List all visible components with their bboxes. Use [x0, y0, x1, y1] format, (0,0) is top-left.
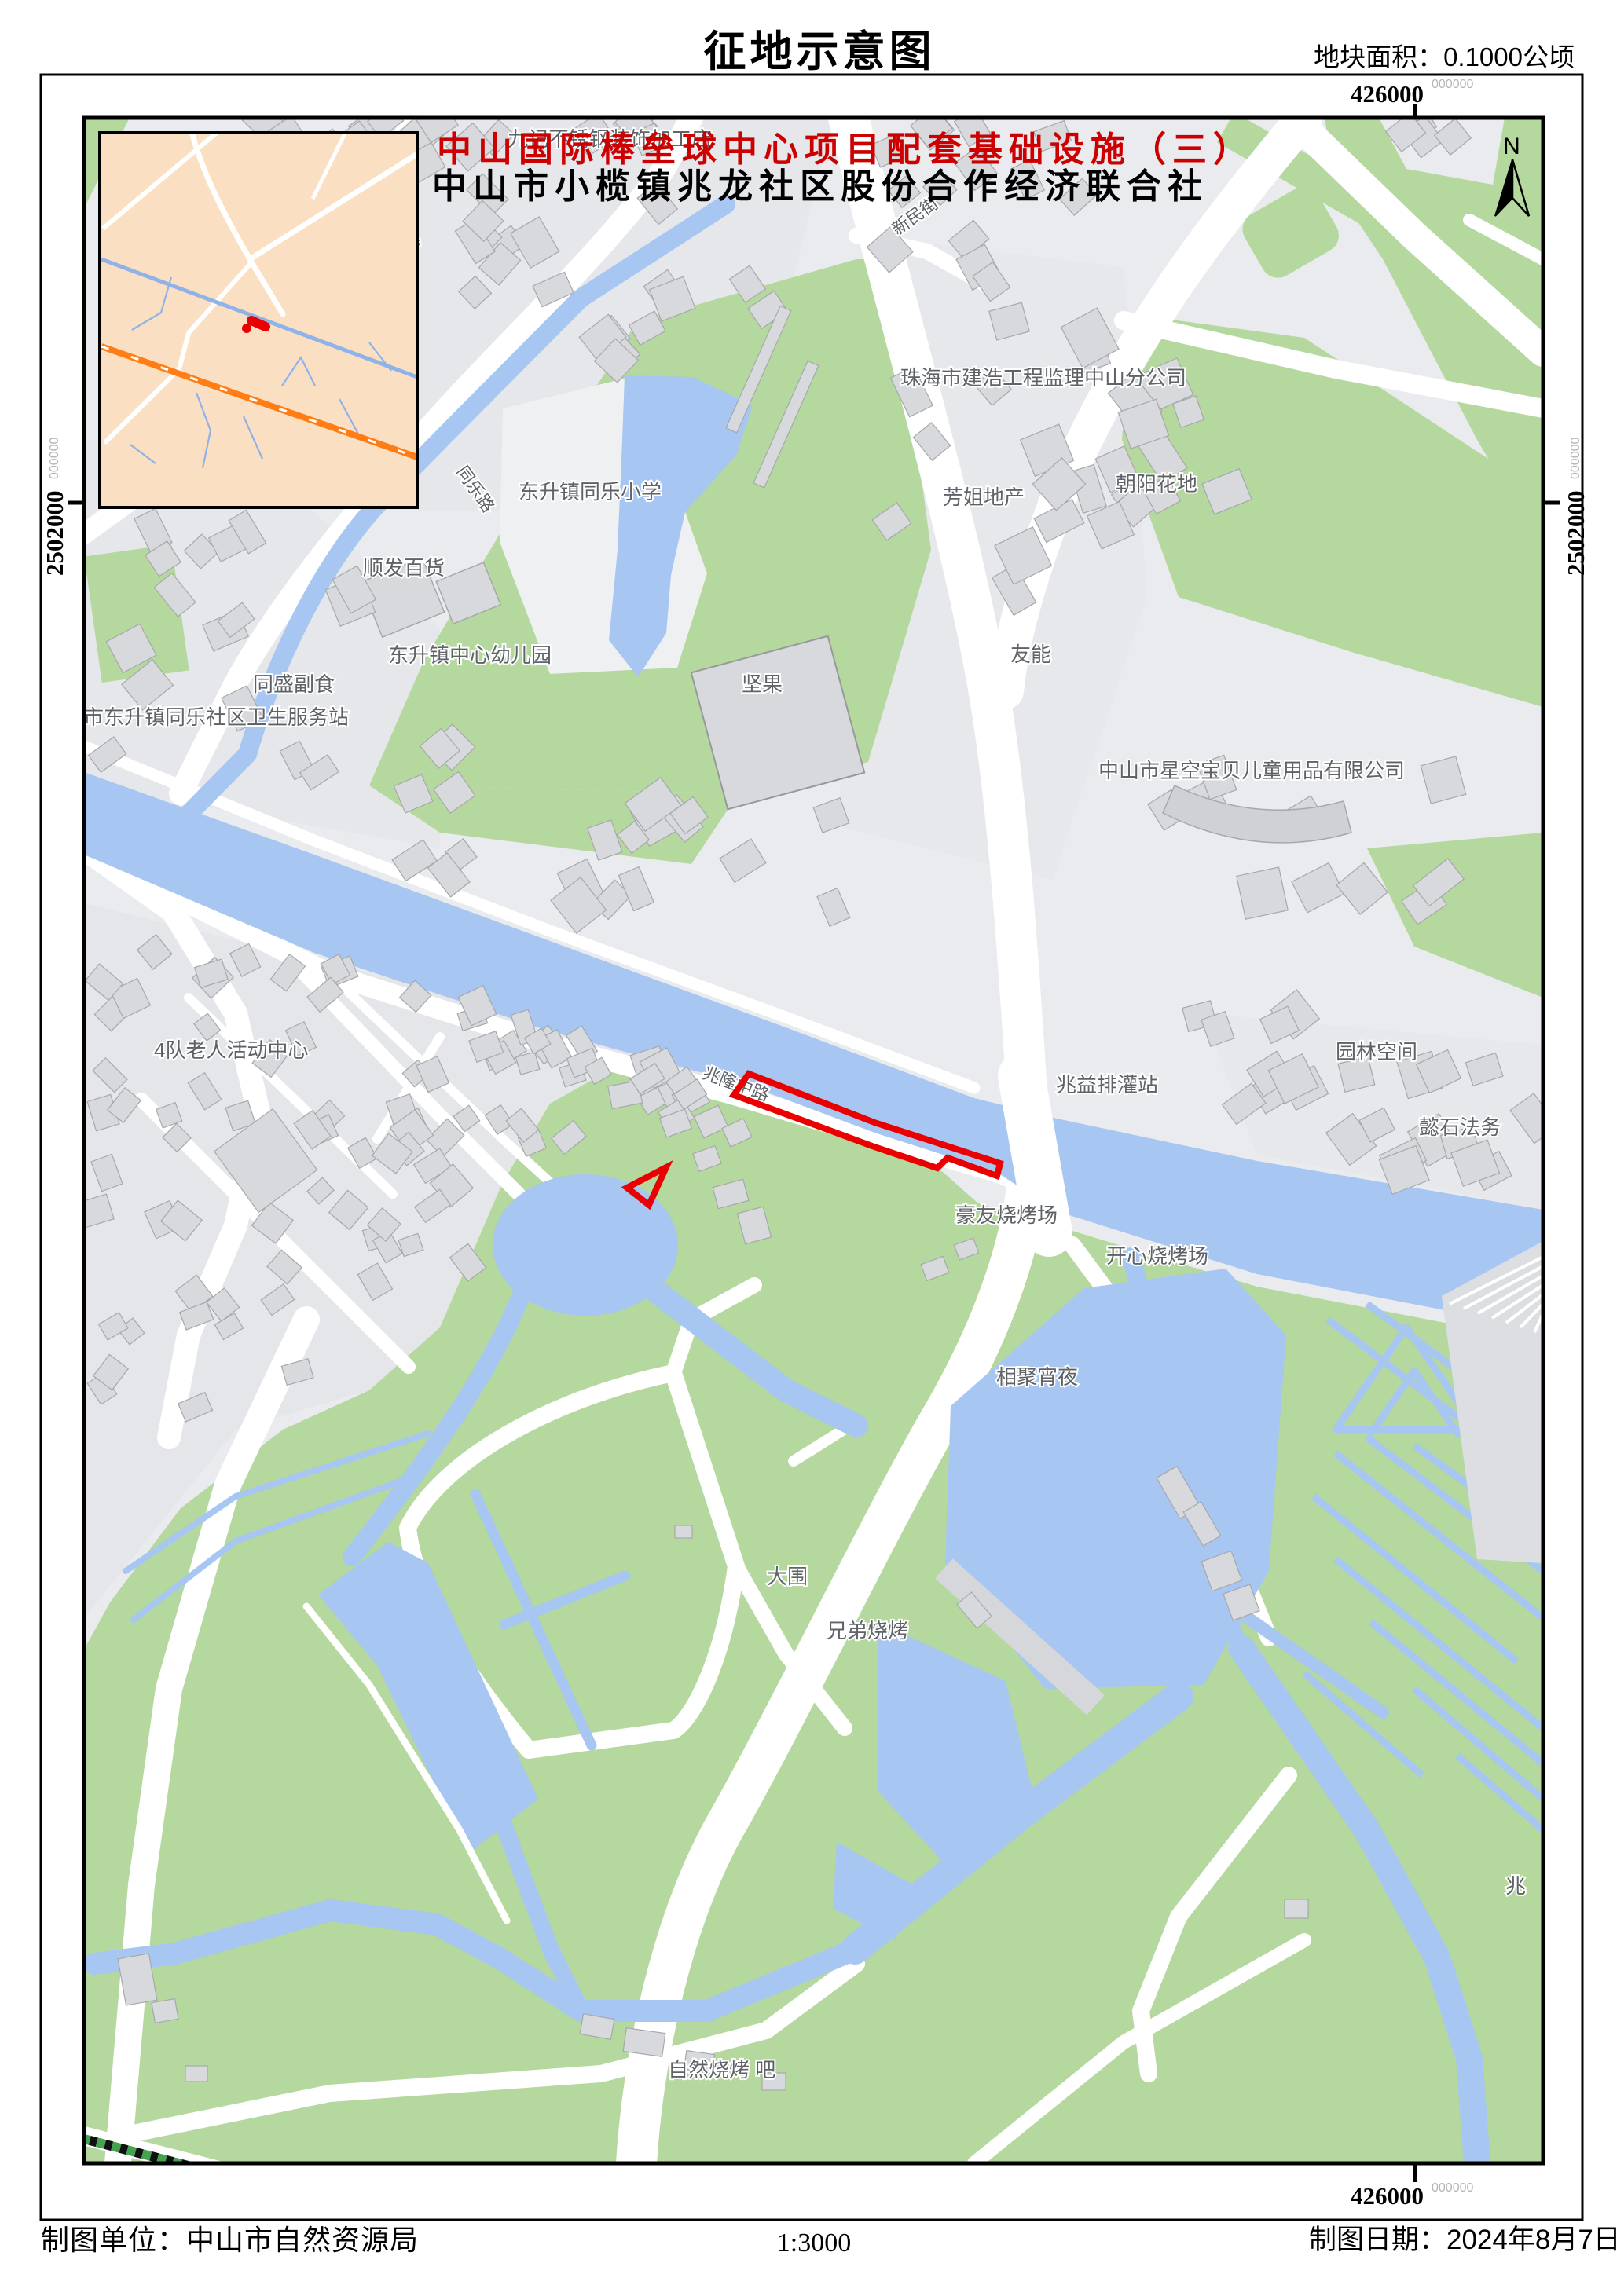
- svg-text:懿石法务: 懿石法务: [1419, 1115, 1501, 1139]
- svg-text:豪友烧烤场: 豪友烧烤场: [955, 1203, 1058, 1227]
- svg-text:同盛副食: 同盛副食: [253, 672, 335, 696]
- svg-text:芳姐地产: 芳姐地产: [943, 485, 1025, 509]
- svg-text:友能: 友能: [1010, 643, 1051, 666]
- svg-text:000000: 000000: [48, 438, 61, 479]
- svg-text:相聚宵夜: 相聚宵夜: [996, 1365, 1078, 1389]
- svg-text:制图单位：中山市自然资源局: 制图单位：中山市自然资源局: [41, 2224, 419, 2256]
- svg-text:征地示意图: 征地示意图: [704, 28, 936, 75]
- svg-text:坚果: 坚果: [742, 672, 783, 696]
- svg-text:中山市星空宝贝儿童用品有限公司: 中山市星空宝贝儿童用品有限公司: [1098, 759, 1405, 782]
- svg-text:兄弟烧烤: 兄弟烧烤: [827, 1619, 908, 1642]
- svg-text:000000: 000000: [1432, 2181, 1473, 2195]
- svg-text:顺发百货: 顺发百货: [363, 556, 445, 580]
- svg-text:4队老人活动中心: 4队老人活动中心: [154, 1038, 308, 1062]
- svg-text:2502000: 2502000: [41, 491, 68, 577]
- svg-text:珠海市建浩工程监理中山分公司: 珠海市建浩工程监理中山分公司: [900, 366, 1186, 390]
- svg-text:中山国际棒垒球中心项目配套基础设施（三）: 中山国际棒垒球中心项目配套基础设施（三）: [437, 130, 1254, 169]
- svg-text:000000: 000000: [1432, 78, 1473, 91]
- svg-text:东升镇同乐小学: 东升镇同乐小学: [519, 480, 662, 504]
- svg-text:制图日期：2024年8月7日: 制图日期：2024年8月7日: [1309, 2225, 1621, 2255]
- svg-text:自然烧烤 吧: 自然烧烤 吧: [668, 2058, 775, 2082]
- svg-text:东升镇中心幼儿园: 东升镇中心幼儿园: [388, 643, 552, 667]
- svg-text:兆益排灌站: 兆益排灌站: [1056, 1073, 1158, 1097]
- svg-text:N: N: [1503, 134, 1520, 159]
- svg-text:兆: 兆: [1505, 1874, 1526, 1898]
- svg-text:大围: 大围: [767, 1565, 808, 1588]
- svg-text:426000: 426000: [1351, 2182, 1424, 2210]
- svg-text:园林空间: 园林空间: [1336, 1040, 1417, 1064]
- svg-text:朝阳花地: 朝阳花地: [1116, 472, 1197, 496]
- svg-text:000000: 000000: [1569, 438, 1582, 479]
- svg-text:1:3000: 1:3000: [777, 2228, 851, 2258]
- svg-text:2502000: 2502000: [1562, 491, 1589, 577]
- svg-text:开心烧烤场: 开心烧烤场: [1106, 1244, 1208, 1268]
- svg-text:市东升镇同乐社区卫生服务站: 市东升镇同乐社区卫生服务站: [83, 705, 349, 729]
- svg-text:中山市小榄镇兆龙社区股份合作经济联合社: 中山市小榄镇兆龙社区股份合作经济联合社: [432, 167, 1208, 206]
- svg-text:426000: 426000: [1351, 80, 1424, 108]
- svg-text:地块面积：0.1000公顷: 地块面积：0.1000公顷: [1314, 42, 1575, 71]
